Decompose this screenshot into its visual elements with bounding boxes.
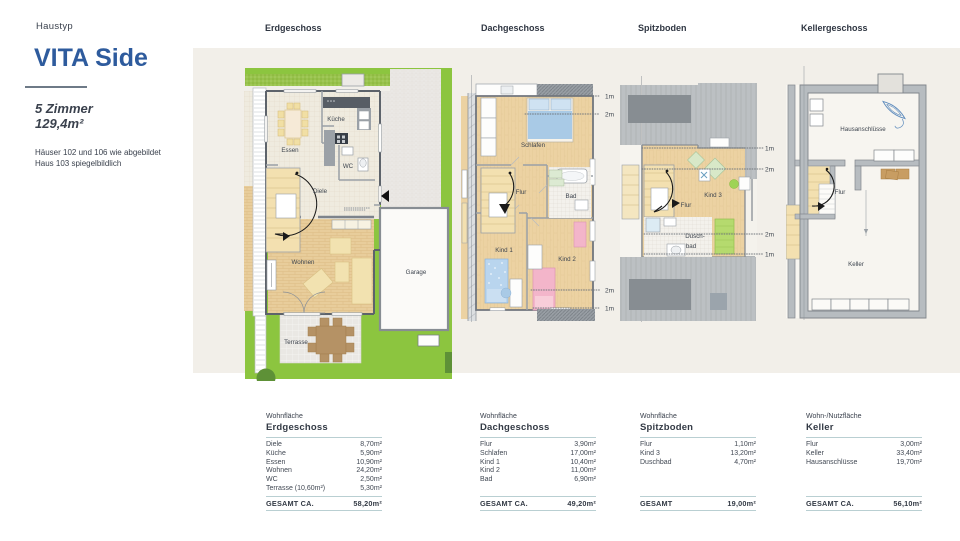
svg-text:1m: 1m [605, 94, 614, 101]
svg-text:Kind 2: Kind 2 [558, 256, 576, 263]
svg-text:Essen: Essen [281, 147, 299, 154]
svg-text:Garage: Garage [406, 269, 427, 276]
svg-text:1m: 1m [605, 306, 614, 313]
svg-text:Kind 1: Kind 1 [495, 247, 513, 254]
svg-text:Flur: Flur [681, 202, 692, 209]
svg-text:Keller: Keller [848, 261, 864, 268]
svg-text:Wohnen: Wohnen [292, 259, 315, 266]
svg-text:bad: bad [686, 243, 697, 250]
svg-text:Diele: Diele [313, 188, 328, 195]
svg-text:Bad: Bad [565, 193, 577, 200]
svg-text:2m: 2m [605, 288, 614, 295]
svg-text:1m: 1m [765, 252, 774, 259]
svg-text:Terrasse: Terrasse [284, 339, 308, 346]
svg-text:2m: 2m [765, 232, 774, 239]
svg-text:Hausanschlüsse: Hausanschlüsse [840, 126, 886, 133]
svg-text:Flur: Flur [516, 189, 527, 196]
svg-text:Kind 3: Kind 3 [704, 192, 722, 199]
svg-text:Flur: Flur [835, 189, 846, 196]
svg-text:2m: 2m [605, 112, 614, 119]
svg-text:2m: 2m [765, 167, 774, 174]
svg-text:Dusch-: Dusch- [685, 233, 705, 240]
svg-text:1m: 1m [765, 146, 774, 153]
svg-text:Küche: Küche [327, 116, 345, 123]
svg-text:Schlafen: Schlafen [521, 142, 546, 149]
svg-text:WC: WC [343, 163, 354, 170]
